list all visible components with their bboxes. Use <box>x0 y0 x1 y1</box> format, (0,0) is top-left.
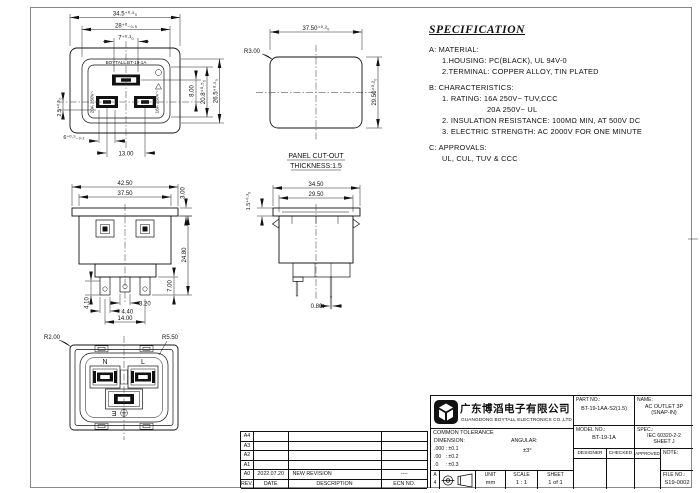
front-view: 42.50 37.50 3.00 24.80 7.00 4.10 3.20 <box>72 181 192 325</box>
scale-value: 1 : 1 <box>506 478 537 486</box>
ul-mark-icon <box>156 70 162 76</box>
dim-r2-00: R2.00 <box>44 335 61 341</box>
designer-value-cell <box>574 459 607 489</box>
name-cell: NAME: AC OUTLET 3P (SNAP-IN) <box>635 396 693 426</box>
panel-cutout-label: PANEL CUT-OUT <box>288 153 344 160</box>
ecn-cell <box>382 442 428 451</box>
panel-cutout-view: 37.50⁺⁰·²₀ 29.50⁺⁰·²₀ R3.00 PANEL CUT-OU… <box>244 25 382 170</box>
approved-value-cell <box>635 459 660 489</box>
table-row: A1 <box>241 461 427 471</box>
rev-header: REV. <box>241 480 254 489</box>
spec-line: 1.HOUSING: PC(BLACK), UL 94V-0 <box>429 55 691 66</box>
rev-cell: A3 <box>241 442 254 451</box>
face-marking: BOYTALL BT-19-1A <box>106 60 148 65</box>
company-cell: 广东博滔电子有限公司 GUANGDONG BOYTALL ELECTRONICS… <box>431 396 574 429</box>
rev-cell: A1 <box>241 461 254 470</box>
checked-header: CHECKED <box>607 449 635 459</box>
scale-cell: SCALE 1 : 1 <box>506 471 538 489</box>
date-cell <box>254 432 289 441</box>
dim-0-80t: 0.80t <box>311 304 325 310</box>
model-no-cell: MODEL NO.: BT-19-1A <box>574 426 635 449</box>
dim-3-00: 3.00 <box>181 187 187 199</box>
spec-line: B: CHARACTERISTICS: <box>429 82 691 93</box>
rev-cell: A2 <box>241 451 254 460</box>
table-row: A0 2022.07.20 NEW REVISION ---- <box>241 470 427 480</box>
third-angle-projection-icon <box>441 473 475 490</box>
dim-34-5: 34.5⁺⁰·⁵₀ <box>113 11 138 18</box>
dim-42-50: 42.50 <box>117 181 133 187</box>
unit-value: mm <box>476 478 505 486</box>
angular-label: ANGULAR: <box>511 438 538 444</box>
angular-value: ±3° <box>523 448 532 454</box>
ecn-header: ECN NO. <box>382 480 428 489</box>
dim-26-5: 26.5⁺⁰·⁵₀ <box>213 78 220 103</box>
scale-label: SCALE <box>506 471 537 478</box>
table-row: A2 <box>241 451 427 461</box>
description-cell <box>289 432 382 441</box>
spec-line: 20A 250V~ UL <box>429 104 691 115</box>
company-logo <box>434 400 458 426</box>
ecn-cell <box>382 451 428 460</box>
dim-37-50-front: 37.50 <box>117 191 133 197</box>
dim-20-8: 20.8⁺⁰·⁵₀ <box>200 79 207 104</box>
paper-number: 4 <box>431 479 439 487</box>
dim-6: 6⁺⁰·⁵₋₀.₂ <box>63 134 84 141</box>
spec-line: 1. RATING: 16A 250V~ TUV,CCC <box>429 93 691 104</box>
side-view: 34.50 29.50 1.5⁺⁰·³₀ 0.80t <box>245 182 360 310</box>
spec-no-cell: SPEC.: IEC 60320-2-2 SHEET J <box>635 426 693 449</box>
label-e: E <box>111 409 116 416</box>
file-no-value: S19-0002 <box>661 478 693 486</box>
spec-line: 2.TERMINAL: COPPER ALLOY, TIN PLATED <box>429 66 691 77</box>
description-cell: NEW REVISION <box>289 470 382 479</box>
part-no-label: PART NO.: <box>574 396 634 403</box>
spec-line: 2. INSULATION RESISTANCE: 100MΩ MIN, AT … <box>429 115 691 126</box>
spec-line: A: MATERIAL: <box>429 44 691 55</box>
designer-header: DESIGNER <box>574 449 607 459</box>
sheet-cell: SHEET 1 of 1 <box>538 471 574 489</box>
dim-8-00: 8.00 <box>190 85 196 97</box>
table-header-row: REV. DATE DESCRIPTION ECN NO. <box>241 480 427 490</box>
drawing-sheet: BOYTALL BT-19-1A 20A 250V~ 16A 250V~ 34.… <box>0 0 700 493</box>
common-tolerance-label: COMMON TOLERANCE <box>433 430 494 436</box>
spec-line: C: APPROVALS: <box>429 142 691 153</box>
label-l: L <box>141 359 145 366</box>
rev-cell: A4 <box>241 432 254 441</box>
part-no-value: BT-19-1AA-S2(1.5) <box>574 403 634 412</box>
spec-line: 3. ELECTRIC STRENGTH: AC 2000V FOR ONE M… <box>429 126 691 137</box>
name-value-line1: AC OUTLET 3P <box>635 403 693 410</box>
dim-28: 28⁺⁰₋₀.₅ <box>115 23 138 30</box>
paper-size-cell: A 4 <box>431 471 440 489</box>
dimension-label: DIMENSION: <box>434 438 465 444</box>
unit-label: UNIT <box>476 471 505 478</box>
dim-4-10: 4.10 <box>85 297 91 309</box>
dim-29-50: 29.50⁺⁰·²₀ <box>371 78 378 106</box>
company-name-en: GUANGDONG BOYTALL ELECTRONICS CO.,LTD <box>461 417 572 422</box>
dim-1-5: 1.5⁺⁰·³₀ <box>245 192 252 211</box>
dim-29-50-side: 29.50 <box>308 192 324 198</box>
dim-r3-00: R3.00 <box>244 49 261 55</box>
specification-block: SPECIFICATION A: MATERIAL: 1.HOUSING: PC… <box>429 24 691 164</box>
sheet-value: 1 of 1 <box>538 478 573 486</box>
rev-cell: A0 <box>241 470 254 479</box>
description-header: DESCRIPTION <box>289 480 382 489</box>
approved-header: APPROVED <box>635 449 660 459</box>
name-label: NAME: <box>635 396 693 403</box>
tolerance-row: .00 : ±0.2 <box>434 454 458 460</box>
dim-7-00: 7.00 <box>168 280 174 292</box>
ecn-cell <box>382 461 428 470</box>
model-no-value: BT-19-1A <box>574 433 634 441</box>
note-label: NOTE: <box>661 449 693 456</box>
terminal-n <box>90 366 120 388</box>
panel-thickness-label: THICKNESS:1.5 <box>290 163 342 170</box>
ccc-mark-icon <box>156 84 162 90</box>
dim-4-40: 4.40 <box>122 309 134 315</box>
dim-34-50: 34.50 <box>308 182 324 188</box>
name-value-line2: (SNAP-IN) <box>635 410 693 416</box>
label-n: N <box>102 359 107 366</box>
specification-title: SPECIFICATION <box>429 24 691 36</box>
unit-cell: UNIT mm <box>476 471 506 489</box>
sheet-label: SHEET <box>538 471 573 478</box>
note-cell: NOTE: <box>660 449 693 471</box>
description-cell <box>289 461 382 470</box>
checked-value-cell <box>607 459 635 489</box>
tolerance-row: .000 : ±0.1 <box>434 446 458 452</box>
dim-2-5: 2.5⁺⁰·⁵₀ <box>56 97 63 116</box>
spec-value-line2: SHEET J <box>635 439 693 445</box>
dim-7: 7⁺⁰·³₀ <box>118 35 134 42</box>
face-view: BOYTALL BT-19-1A 20A 250V~ 16A 250V~ 34.… <box>56 11 224 158</box>
projection-symbol-cell <box>440 471 476 489</box>
date-cell <box>254 451 289 460</box>
dim-37-50: 37.50⁺⁰·²₀ <box>302 25 330 32</box>
description-cell <box>289 442 382 451</box>
tolerance-row: .0 : ±0.3 <box>434 462 458 468</box>
date-cell <box>254 442 289 451</box>
date-header: DATE <box>254 480 289 489</box>
dim-24-80: 24.80 <box>182 247 188 263</box>
date-cell <box>254 461 289 470</box>
date-cell: 2022.07.20 <box>254 470 289 479</box>
model-no-label: MODEL NO.: <box>574 426 634 433</box>
part-no-cell: PART NO.: BT-19-1AA-S2(1.5) <box>574 396 635 426</box>
dim-13-00: 13.00 <box>118 151 134 157</box>
ecn-cell: ---- <box>382 470 427 479</box>
tolerance-cell: COMMON TOLERANCE DIMENSION: ANGULAR: .00… <box>431 429 574 471</box>
spec-line: UL, CUL, TUV & CCC <box>429 153 691 164</box>
ecn-cell <box>382 432 428 441</box>
file-no-label: FILE NO.: <box>661 471 693 478</box>
spec-label: SPEC.: <box>635 426 693 433</box>
table-row: A3 <box>241 442 427 452</box>
company-name-cn: 广东博滔电子有限公司 <box>460 401 570 416</box>
file-no-cell: FILE NO.: S19-0002 <box>660 471 693 489</box>
dim-14-00: 14.00 <box>117 316 133 322</box>
revision-table: A4 A3 A2 A1 A0 2022.07.20 NEW REVISION -… <box>240 431 428 488</box>
terminal-l <box>128 366 158 388</box>
description-cell <box>289 451 382 460</box>
paper-letter: A <box>431 471 439 479</box>
title-block: 广东博滔电子有限公司 GUANGDONG BOYTALL ELECTRONICS… <box>430 395 692 488</box>
rear-view: R2.00 R5.50 <box>44 335 179 440</box>
dim-r5-50: R5.50 <box>162 335 179 341</box>
table-row: A4 <box>241 432 427 442</box>
